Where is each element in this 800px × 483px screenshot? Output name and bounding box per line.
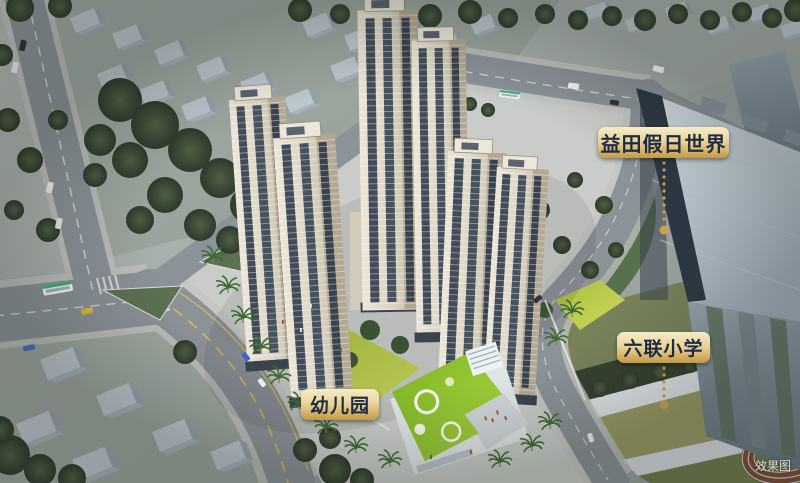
vignette: [0, 0, 800, 483]
label-yitian-holiday-world: 益田假日世界: [598, 127, 729, 158]
aerial-rendering: 益田假日世界 六联小学 幼儿园 效果图: [0, 0, 800, 483]
label-kindergarten: 幼儿园: [301, 389, 379, 420]
label-liulian-primary-school: 六联小学: [617, 332, 710, 363]
watermark-rendering-note: 效果图: [755, 457, 791, 474]
rendering-scene: [0, 0, 800, 483]
